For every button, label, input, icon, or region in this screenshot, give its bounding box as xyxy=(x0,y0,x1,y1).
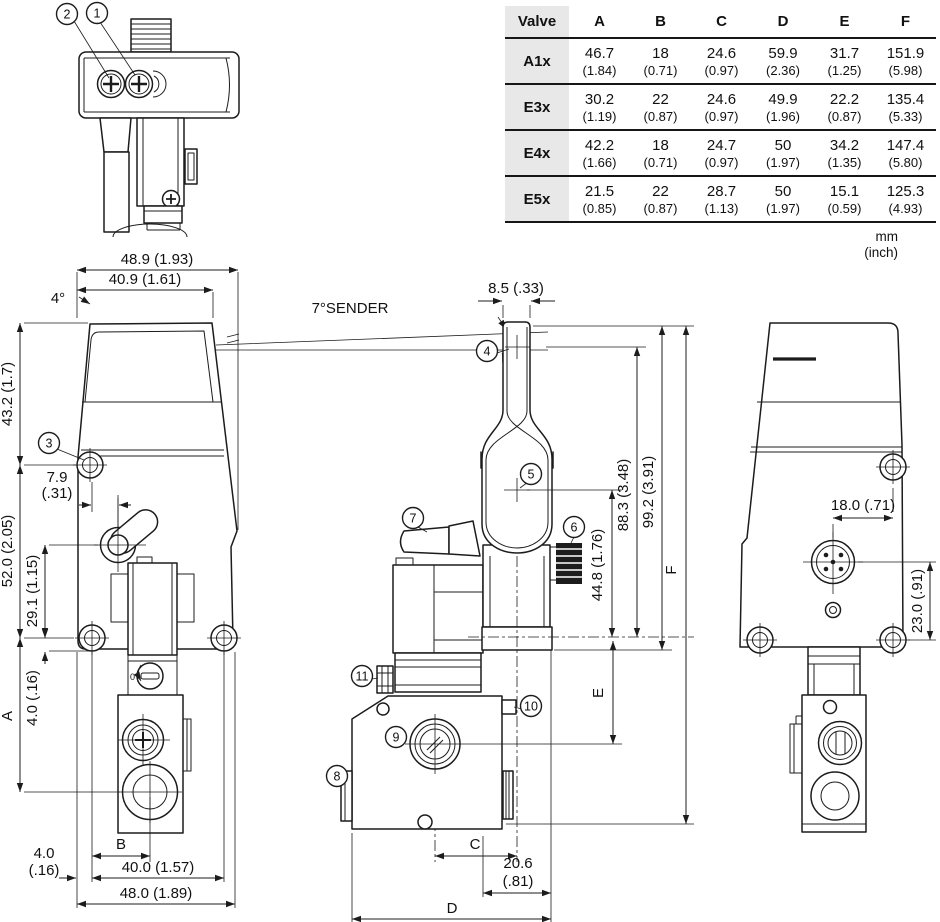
cell: 50(1.97) xyxy=(752,176,814,222)
callout-9-number: 9 xyxy=(393,731,400,745)
callout-8: 8 xyxy=(327,766,348,787)
value-inch: (0.71) xyxy=(630,63,691,78)
header-B: B xyxy=(630,6,691,38)
value-mm: 46.7 xyxy=(569,45,630,63)
cell: 49.9(1.96) xyxy=(752,84,814,130)
value-inch: (1.84) xyxy=(569,63,630,78)
value-inch: (1.25) xyxy=(814,63,875,78)
valve-block-rear xyxy=(790,695,866,832)
value-mm: 18 xyxy=(630,137,691,155)
cell: 31.7(1.25) xyxy=(814,38,875,84)
value-inch: (1.13) xyxy=(691,201,752,216)
dim-A: A xyxy=(0,711,16,721)
value-inch: (2.36) xyxy=(752,63,814,78)
rear-neck xyxy=(808,647,860,695)
dim-C: C xyxy=(470,836,481,853)
cell: 125.3(4.93) xyxy=(875,176,936,222)
value-inch: (0.59) xyxy=(814,201,875,216)
value-inch: (0.87) xyxy=(630,201,691,216)
cell: 46.7(1.84) xyxy=(569,38,630,84)
cell: 42.2(1.66) xyxy=(569,130,630,176)
override-zero-label: 0 xyxy=(130,672,135,682)
value-inch: (1.97) xyxy=(752,155,814,170)
value-inch: (1.96) xyxy=(752,109,814,124)
cell: 50(1.97) xyxy=(752,130,814,176)
dim-18-0: 18.0 (.71) xyxy=(831,497,895,514)
value-mm: 49.9 xyxy=(752,91,814,109)
unit-mm: mm xyxy=(505,229,898,245)
dim-23-0: 23.0 (.91) xyxy=(909,569,926,633)
cell: 21.5(0.85) xyxy=(569,176,630,222)
callout-6: 6 xyxy=(564,517,585,544)
callout-3: 3 xyxy=(39,433,85,461)
header-D: D xyxy=(752,6,814,38)
cell: 22(0.87) xyxy=(630,84,691,130)
value-inch: (0.87) xyxy=(630,109,691,124)
table-row-a1x: A1x 46.7(1.84) 18(0.71) 24.6(0.97) 59.9(… xyxy=(505,38,936,84)
dim-D: D xyxy=(447,900,458,917)
dim-44-8: 44.8 (1.76) xyxy=(589,529,606,602)
valve-block-front xyxy=(118,695,191,833)
cell: 22.2(0.87) xyxy=(814,84,875,130)
front-view: 0 3 xyxy=(39,323,242,833)
value-inch: (1.35) xyxy=(814,155,875,170)
callout-1: 1 xyxy=(87,3,108,24)
cell: 22(0.87) xyxy=(630,176,691,222)
cover-screw-left xyxy=(98,71,125,98)
cell: 135.4(5.33) xyxy=(875,84,936,130)
value-mm: 15.1 xyxy=(814,183,875,201)
table-row-e4x: E4x 42.2(1.66) 18(0.71) 24.7(0.97) 50(1.… xyxy=(505,130,936,176)
dim-7-9: 7.9 xyxy=(47,469,68,486)
cell: 59.9(2.36) xyxy=(752,38,814,84)
dim-7-9-inch: (.31) xyxy=(42,485,73,502)
callout-7: 7 xyxy=(403,508,428,533)
cell: 15.1(0.59) xyxy=(814,176,875,222)
cell: 28.7(1.13) xyxy=(691,176,752,222)
value-mm: 59.9 xyxy=(752,45,814,63)
header-A: A xyxy=(569,6,630,38)
value-inch: (5.33) xyxy=(875,109,936,124)
sender-annotation: 7°SENDER xyxy=(216,300,548,366)
table-header-row: Valve A B C D E F xyxy=(505,6,936,38)
cell: 151.9(5.98) xyxy=(875,38,936,84)
dim-20-6: 20.6 xyxy=(503,855,532,872)
value-mm: 34.2 xyxy=(814,137,875,155)
value-inch: (4.93) xyxy=(875,201,936,216)
side-view: 4 5 6 7 8 9 10 xyxy=(327,322,695,862)
callout-11: 11 xyxy=(352,666,379,687)
table-row-e3x: E3x 30.2(1.19) 22(0.87) 24.6(0.97) 49.9(… xyxy=(505,84,936,130)
callout-4-number: 4 xyxy=(484,345,491,359)
callout-7-number: 7 xyxy=(410,512,417,526)
valve-dimension-table-wrap: Valve A B C D E F A1x 46.7(1.84) 18(0.71… xyxy=(505,6,936,223)
cable-gland xyxy=(449,521,480,556)
value-mm: 147.4 xyxy=(875,137,936,155)
valve-port-upper-rear xyxy=(819,722,862,765)
row-label: E4x xyxy=(505,130,569,176)
sender-label: 7°SENDER xyxy=(312,300,389,317)
dim-88-3: 88.3 (3.48) xyxy=(615,459,632,532)
value-mm: 151.9 xyxy=(875,45,936,63)
solenoid-side xyxy=(393,558,483,692)
value-inch: (0.71) xyxy=(630,155,691,170)
dim-40-9: 40.9 (1.61) xyxy=(109,271,182,288)
rear-view: 18.0 (.71) 23.0 (.91) xyxy=(740,323,936,832)
callout-9: 9 xyxy=(386,727,407,748)
value-inch: (0.87) xyxy=(814,109,875,124)
cell: 24.6(0.97) xyxy=(691,84,752,130)
dim-99-2: 99.2 (3.91) xyxy=(640,456,657,529)
value-mm: 30.2 xyxy=(569,91,630,109)
row-label: A1x xyxy=(505,38,569,84)
dim-29-1: 29.1 (1.15) xyxy=(24,555,41,628)
value-mm: 22 xyxy=(630,91,691,109)
callout-5-number: 5 xyxy=(528,468,535,482)
unit-note: mm (inch) xyxy=(505,229,936,261)
value-mm: 42.2 xyxy=(569,137,630,155)
unit-inch: (inch) xyxy=(505,245,898,261)
value-inch: (1.66) xyxy=(569,155,630,170)
value-inch: (0.97) xyxy=(691,155,752,170)
callout-2: 2 xyxy=(57,4,78,25)
cell: 24.6(0.97) xyxy=(691,38,752,84)
value-mm: 21.5 xyxy=(569,183,630,201)
callout-10-number: 10 xyxy=(524,700,538,714)
value-mm: 50 xyxy=(752,137,814,155)
value-mm: 24.6 xyxy=(691,45,752,63)
top-view: 2 1 xyxy=(57,3,240,238)
cell: 30.2(1.19) xyxy=(569,84,630,130)
row-label: E3x xyxy=(505,84,569,130)
value-inch: (0.85) xyxy=(569,201,630,216)
callout-3-number: 3 xyxy=(46,437,53,451)
technical-drawing-page: 2 1 7°SENDER xyxy=(0,0,940,922)
callout-1-number: 1 xyxy=(94,7,101,21)
dim-B: B xyxy=(116,836,126,853)
row-label: E5x xyxy=(505,176,569,222)
dim-20-6-inch: (.81) xyxy=(503,873,534,890)
cell: 18(0.71) xyxy=(630,130,691,176)
valve-port-lower-rear xyxy=(811,772,859,820)
value-mm: 50 xyxy=(752,183,814,201)
value-mm: 18 xyxy=(630,45,691,63)
value-mm: 28.7 xyxy=(691,183,752,201)
value-mm: 24.6 xyxy=(691,91,752,109)
dim-8-5: 8.5 (.33) xyxy=(488,280,544,297)
hex-nut xyxy=(377,666,393,693)
callout-2-number: 2 xyxy=(64,8,71,22)
cell: 18(0.71) xyxy=(630,38,691,84)
value-inch: (5.98) xyxy=(875,63,936,78)
header-valve: Valve xyxy=(505,6,569,38)
dim-4-0-b-inch: (.16) xyxy=(29,862,60,879)
header-E: E xyxy=(814,6,875,38)
value-mm: 135.4 xyxy=(875,91,936,109)
header-F: F xyxy=(875,6,936,38)
callout-10: 10 xyxy=(514,696,542,717)
dim-43-2: 43.2 (1.7) xyxy=(0,362,16,426)
table-row-e5x: E5x 21.5(0.85) 22(0.87) 28.7(1.13) 50(1.… xyxy=(505,176,936,222)
dim-E: E xyxy=(590,688,607,698)
valve-dimension-table: Valve A B C D E F A1x 46.7(1.84) 18(0.71… xyxy=(505,6,936,223)
dim-4-0-v: 4.0 (.16) xyxy=(24,670,41,726)
value-mm: 125.3 xyxy=(875,183,936,201)
dim-48-0: 48.0 (1.89) xyxy=(120,885,193,902)
value-mm: 22.2 xyxy=(814,91,875,109)
dim-4-0-b: 4.0 xyxy=(34,845,55,862)
cover-screw-right xyxy=(126,71,153,98)
callout-6-number: 6 xyxy=(571,521,578,535)
valve-block-side xyxy=(341,696,622,829)
rear-housing xyxy=(740,323,903,647)
header-C: C xyxy=(691,6,752,38)
callout-8-number: 8 xyxy=(334,770,341,784)
callout-11-number: 11 xyxy=(356,670,369,684)
cell: 147.4(5.80) xyxy=(875,130,936,176)
thread-stub xyxy=(550,543,582,584)
value-mm: 24.7 xyxy=(691,137,752,155)
dim-4deg: 4° xyxy=(51,290,65,307)
dim-48-9: 48.9 (1.93) xyxy=(121,251,194,268)
dim-F: F xyxy=(663,565,680,574)
cell: 24.7(0.97) xyxy=(691,130,752,176)
value-inch: (5.80) xyxy=(875,155,936,170)
led-indicator xyxy=(826,603,841,618)
value-mm: 31.7 xyxy=(814,45,875,63)
sensor-body xyxy=(483,545,550,627)
dim-40-0: 40.0 (1.57) xyxy=(122,859,195,876)
value-inch: (1.19) xyxy=(569,109,630,124)
dim-52-0: 52.0 (2.05) xyxy=(0,515,16,588)
value-inch: (1.97) xyxy=(752,201,814,216)
value-inch: (0.97) xyxy=(691,109,752,124)
manual-override: 0 xyxy=(128,655,177,695)
value-inch: (0.97) xyxy=(691,63,752,78)
value-mm: 22 xyxy=(630,183,691,201)
side-screw xyxy=(163,191,180,208)
cell: 34.2(1.35) xyxy=(814,130,875,176)
